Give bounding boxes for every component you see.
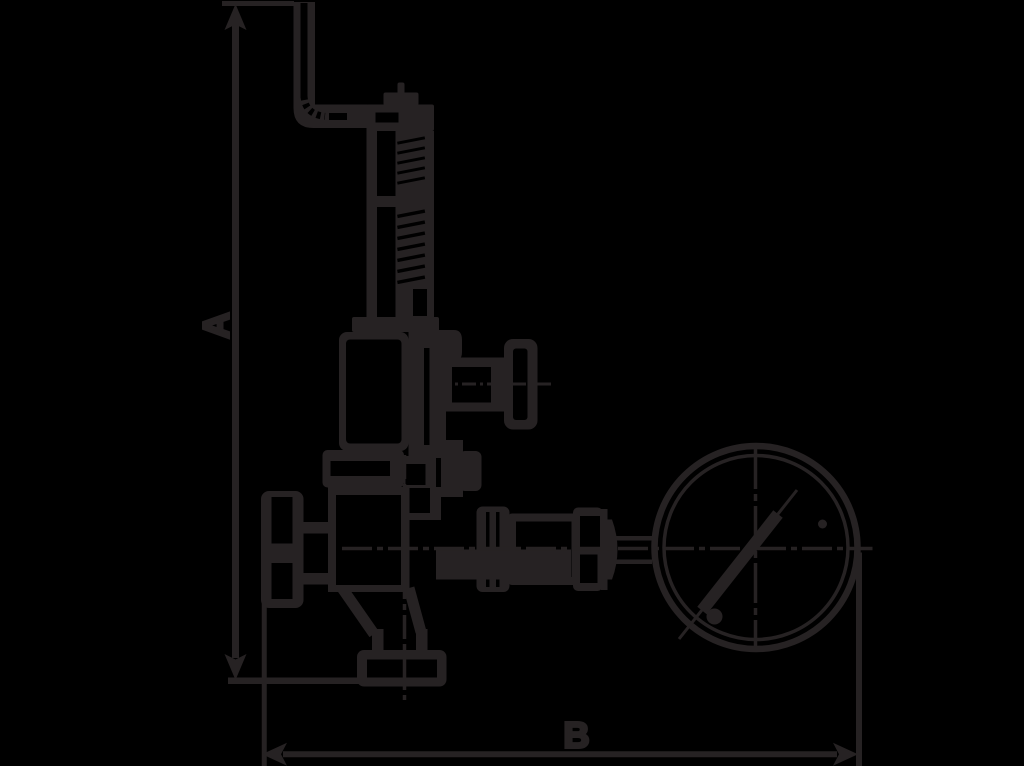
svg-text:A: A bbox=[196, 313, 237, 339]
svg-text:B: B bbox=[564, 715, 590, 756]
